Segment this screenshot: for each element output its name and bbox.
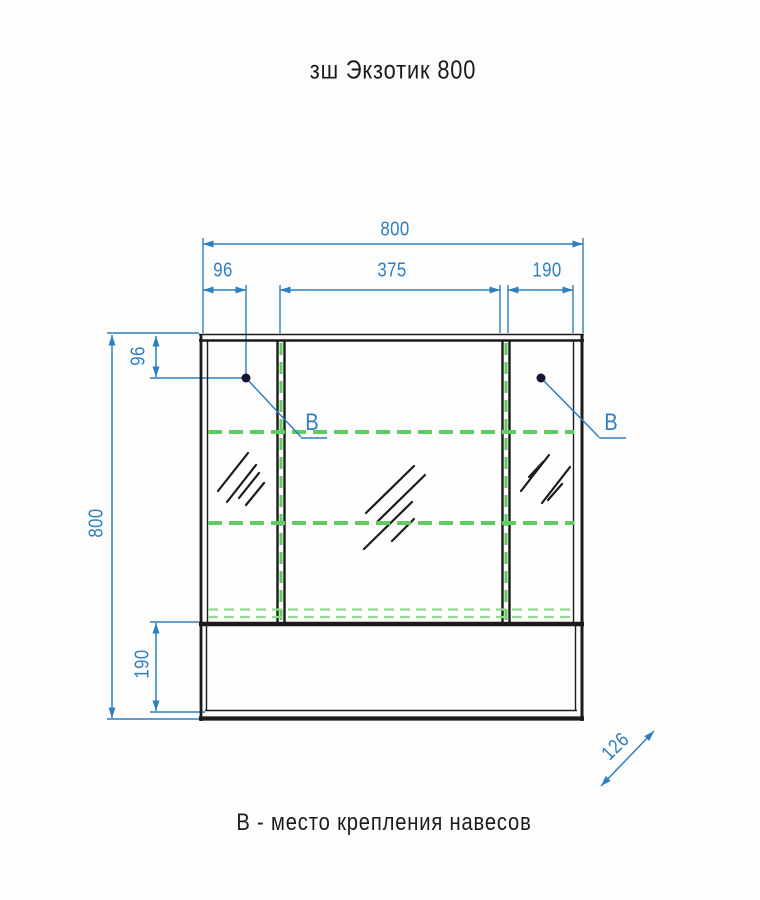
dimension-extension-lines: [107, 238, 583, 719]
mount-dot-left: [242, 374, 251, 383]
cabinet-outline: [199, 334, 584, 721]
partition-hidden-lines: [281, 343, 506, 620]
drawing-title: зш Экзотик 800: [310, 55, 477, 86]
dim-mount-offset-top: 96: [128, 346, 151, 366]
cabinet-drawing: [0, 0, 760, 900]
dim-left-section-width: 96: [213, 260, 233, 283]
technical-drawing-page: зш Экзотик 800 800 96 375 190 96 800 190…: [0, 0, 760, 900]
mount-label-left: В: [305, 409, 318, 437]
dim-overall-width: 800: [380, 219, 409, 242]
mount-dot-right: [537, 374, 546, 383]
mount-label-right: В: [604, 409, 617, 437]
legend-caption: В - место крепления навесов: [236, 809, 531, 837]
dim-middle-section-width: 375: [377, 260, 406, 283]
dim-right-section-width: 190: [532, 260, 561, 283]
dim-bottom-shelf-height: 190: [132, 649, 155, 678]
dim-overall-height: 800: [86, 508, 109, 537]
shelf-lines: [208, 432, 574, 617]
mirror-hatch-marks: [218, 453, 570, 549]
